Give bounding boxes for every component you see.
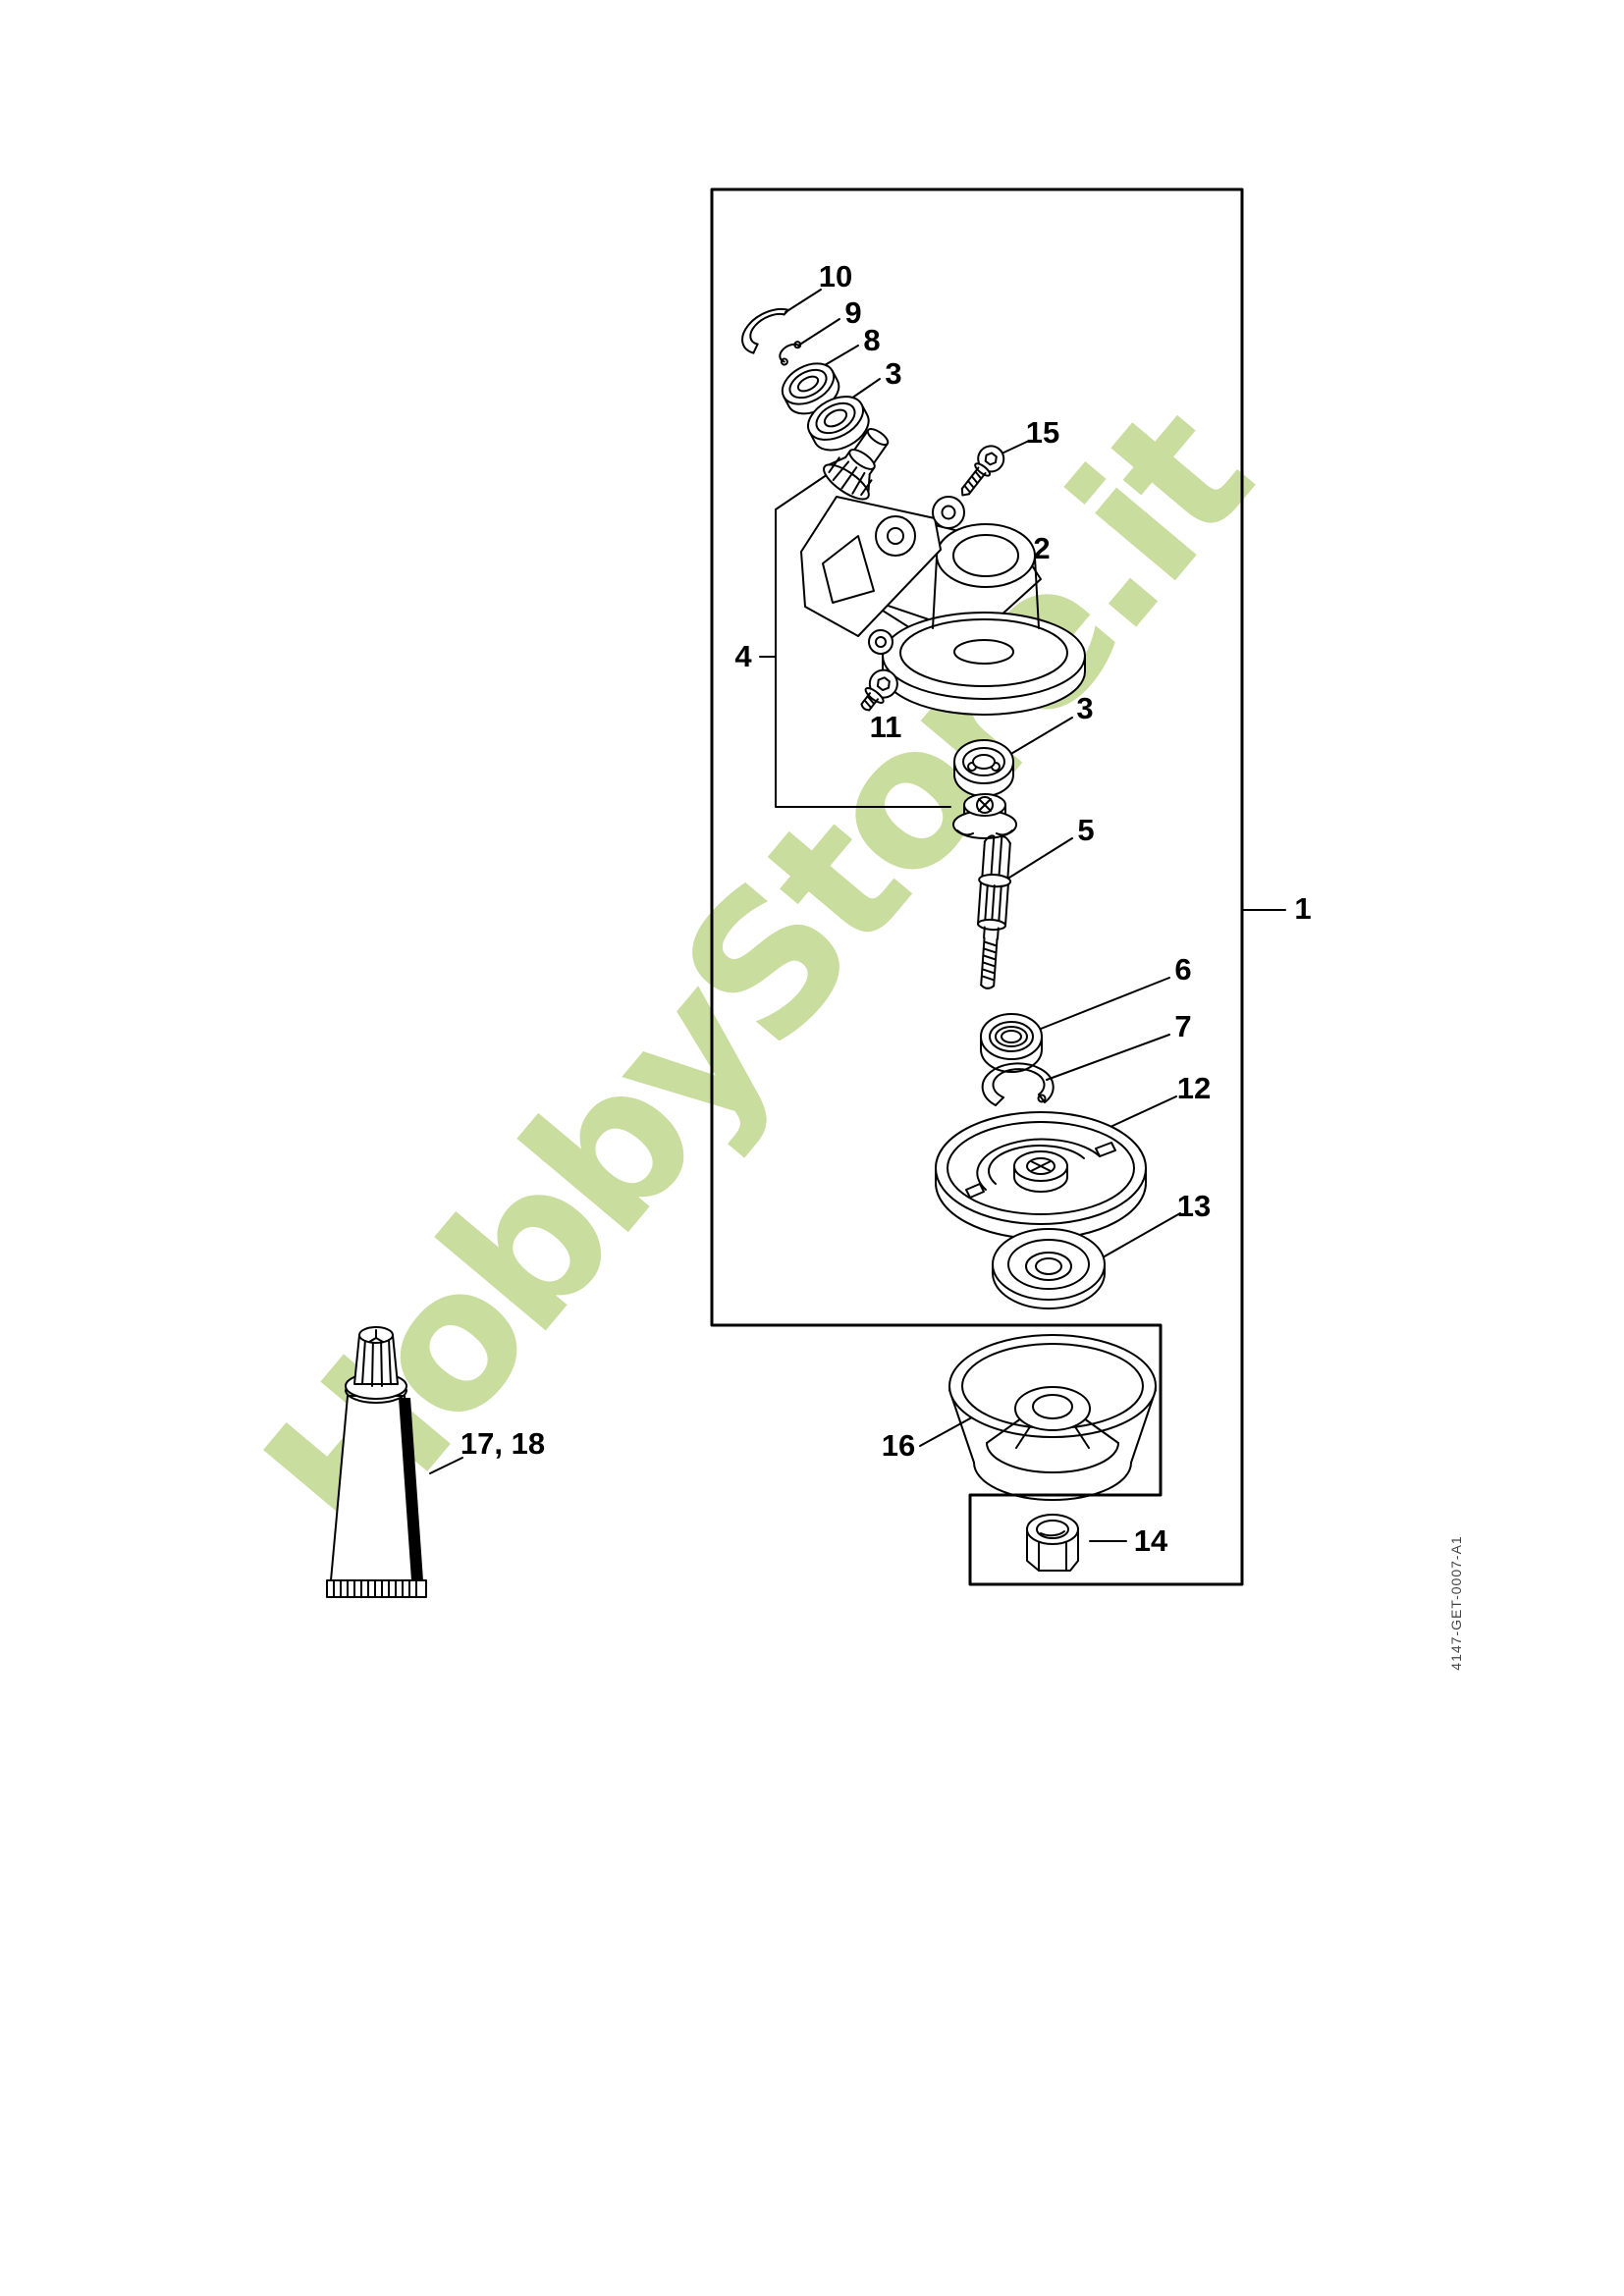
part-screw-15 bbox=[952, 441, 1008, 503]
part-collar-nut-14 bbox=[1027, 1515, 1078, 1571]
callout-10: 10 bbox=[819, 259, 852, 294]
callout-13: 13 bbox=[1177, 1189, 1211, 1224]
leader-9 bbox=[798, 319, 839, 346]
part-rotor-12 bbox=[936, 1112, 1146, 1239]
part-drive-shaft-5 bbox=[972, 835, 1014, 989]
part-grease-tube-17-18 bbox=[327, 1327, 426, 1597]
part-washer-13 bbox=[993, 1229, 1105, 1308]
callout-8: 8 bbox=[863, 323, 880, 358]
callout-4: 4 bbox=[734, 639, 751, 674]
leader-15 bbox=[1000, 441, 1029, 454]
exploded-parts-drawing bbox=[0, 0, 1624, 2296]
callout-12: 12 bbox=[1177, 1071, 1211, 1106]
callout-1: 1 bbox=[1294, 891, 1311, 927]
part-splined-hub bbox=[953, 794, 1016, 838]
callout-11: 11 bbox=[870, 710, 902, 745]
callout-2: 2 bbox=[1033, 531, 1050, 566]
part-bearing-3-lower bbox=[954, 740, 1013, 796]
part-clip-9 bbox=[776, 341, 805, 366]
leader-3-lower bbox=[1009, 718, 1072, 755]
drawing-code: 4147-GET-0007-A1 bbox=[1448, 1535, 1464, 1670]
callout-9: 9 bbox=[844, 295, 861, 331]
part-gear-housing-2 bbox=[801, 497, 1085, 715]
leader-10 bbox=[785, 290, 821, 312]
callout-16: 16 bbox=[882, 1428, 915, 1464]
leader-6 bbox=[1041, 978, 1169, 1029]
leader-7 bbox=[1047, 1035, 1169, 1080]
part-retaining-ring-10 bbox=[734, 302, 798, 355]
callout-6: 6 bbox=[1174, 952, 1191, 988]
callout-7: 7 bbox=[1174, 1009, 1191, 1044]
callout-3-upper: 3 bbox=[885, 356, 901, 392]
callout-14: 14 bbox=[1134, 1523, 1167, 1559]
part-snap-ring-7 bbox=[983, 1063, 1054, 1105]
callout-15: 15 bbox=[1026, 415, 1059, 451]
callout-17-18: 17, 18 bbox=[460, 1426, 545, 1462]
parts-diagram-page: { "document": { "background": "#ffffff",… bbox=[0, 0, 1624, 2296]
callout-5: 5 bbox=[1077, 813, 1094, 848]
part-clutch-drum-16 bbox=[949, 1335, 1156, 1500]
callout-3-lower: 3 bbox=[1076, 691, 1093, 726]
leader-8 bbox=[825, 346, 858, 365]
leader-5 bbox=[1009, 838, 1072, 878]
leader-17-18 bbox=[430, 1458, 462, 1473]
